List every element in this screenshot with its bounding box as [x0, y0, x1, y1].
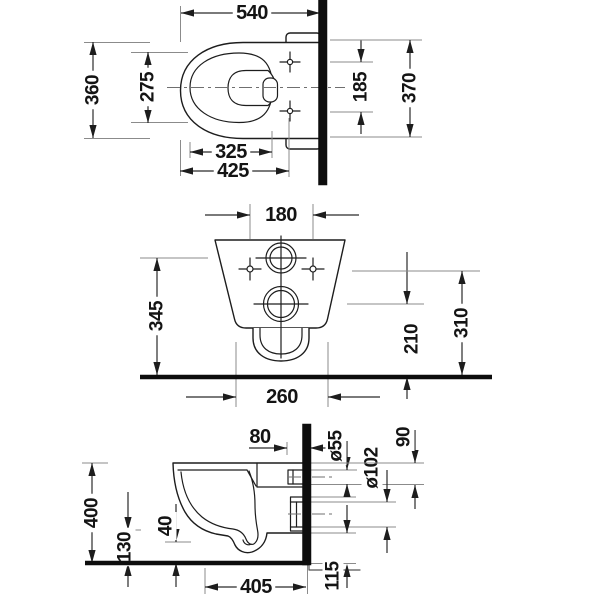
dim-360-arrowhead — [89, 125, 96, 138]
dim-40: 40 — [156, 504, 192, 587]
dim-90-arrowhead — [411, 450, 418, 463]
dim-360-arrowhead — [89, 42, 96, 55]
dim-180: 180 — [205, 204, 359, 239]
dim-345-arrowhead — [153, 362, 160, 375]
top-view-flush-outlet — [263, 78, 278, 102]
dim-370-arrowhead — [406, 40, 413, 53]
dim-185-arrowhead — [357, 49, 364, 62]
dim-425-label: 425 — [217, 160, 249, 182]
dim-102: ø102 — [311, 444, 396, 554]
dim-400-label: 400 — [82, 498, 103, 528]
dim-310-arrowhead — [458, 362, 465, 375]
dim-345-label: 345 — [147, 300, 168, 331]
dim-325-arrowhead — [259, 148, 272, 155]
dim-345-arrowhead — [153, 258, 160, 271]
front-view — [215, 236, 345, 361]
dim-370-label: 370 — [400, 73, 421, 103]
dim-210-label: 210 — [402, 324, 423, 354]
dim-185-arrowhead — [357, 112, 364, 125]
dim-400-arrowhead — [88, 463, 95, 476]
dim-130: 130 — [115, 492, 142, 587]
dim-180-arrowhead — [237, 211, 250, 218]
dim-405-label: 405 — [240, 576, 272, 598]
dim-370: 370 — [330, 40, 422, 137]
dim-425-arrowhead — [276, 167, 289, 174]
wall-line-side-view — [305, 426, 310, 563]
technical-drawing-page: 5403602751853703254251803452103102608040… — [0, 0, 600, 600]
dim-540-label: 540 — [236, 2, 268, 24]
dim-310-label: 310 — [452, 308, 473, 338]
dim-260-arrowhead — [223, 393, 236, 400]
dim-102-arrowhead — [383, 527, 390, 540]
dim-55-arrowhead — [343, 484, 350, 497]
dim-345: 345 — [140, 258, 208, 375]
dim-370-arrowhead — [406, 124, 413, 137]
wall-line-top-view — [321, 2, 326, 183]
dim-210-arrowhead — [403, 291, 410, 304]
dim-325-arrowhead — [190, 148, 203, 155]
dim-40-label: 40 — [156, 516, 177, 536]
dim-540-arrowhead — [307, 9, 320, 16]
dim-55-label: ø55 — [326, 429, 347, 461]
dim-400: 400 — [82, 463, 109, 563]
side-view — [173, 463, 360, 570]
toilet-dimension-drawing: 5403602751853703254251803452103102608040… — [0, 0, 600, 600]
dim-425-arrowhead — [180, 167, 193, 174]
dim-260-arrowhead — [328, 393, 341, 400]
dim-275-label: 275 — [138, 71, 159, 102]
dim-80: 80 — [249, 426, 331, 455]
dim-80-arrowhead — [274, 444, 287, 451]
dim-310-arrowhead — [458, 271, 465, 284]
dim-180-label: 180 — [265, 204, 297, 226]
front-view-body — [215, 240, 345, 328]
dim-405-arrowhead — [293, 583, 306, 590]
dim-275-arrowhead — [144, 110, 151, 123]
dim-275-arrowhead — [144, 52, 151, 65]
dim-80-label: 80 — [249, 426, 271, 448]
dim-180-arrowhead — [313, 211, 326, 218]
dim-115-label: 115 — [323, 560, 344, 590]
dim-102-label: ø102 — [362, 447, 383, 488]
dim-115: 115 — [311, 505, 356, 595]
dim-405-arrowhead — [205, 583, 218, 590]
dim-185-label: 185 — [351, 71, 372, 102]
dim-360-label: 360 — [83, 75, 104, 105]
dim-90-arrowhead — [411, 485, 418, 498]
dim-130-label: 130 — [115, 532, 136, 562]
dim-260-label: 260 — [266, 386, 298, 408]
dim-90-label: 90 — [394, 427, 415, 447]
dim-80-arrowhead — [310, 444, 323, 451]
dim-540-arrowhead — [181, 9, 194, 16]
dim-102-arrowhead — [383, 489, 390, 502]
dim-405: 405 — [205, 563, 308, 598]
